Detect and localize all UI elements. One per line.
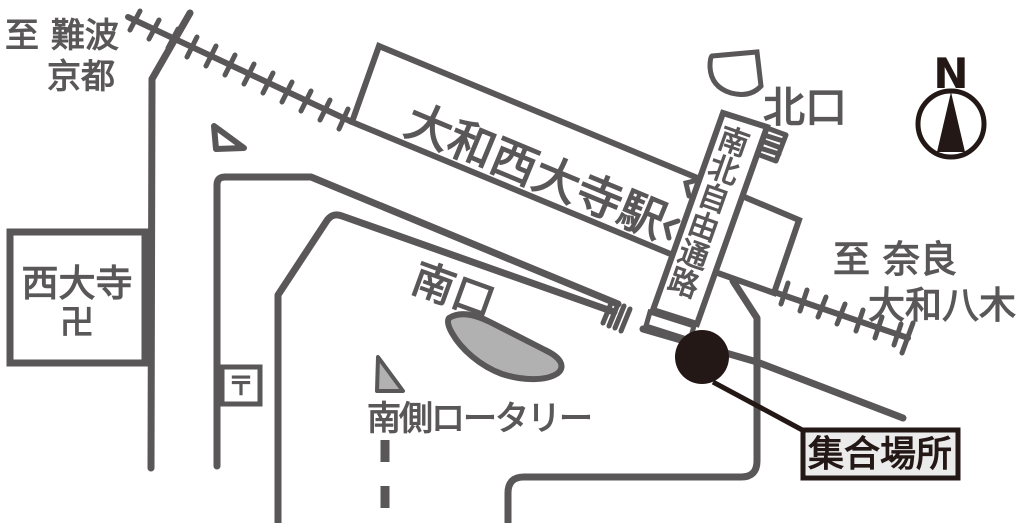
post-office-icon: 〒 — [228, 372, 254, 402]
label-destination-se-2: 大和八木 — [868, 284, 1016, 327]
label-destination-nw-2: 京都 — [47, 57, 115, 97]
south-exit-stairs — [603, 301, 630, 331]
meeting-point-marker — [675, 330, 729, 384]
triangle-marker-south — [377, 357, 403, 391]
label-temple-name: 西大寺 — [22, 262, 133, 305]
rotary-island — [448, 314, 562, 379]
stairs-hatch-south — [603, 301, 630, 331]
railway-nw-line — [128, 17, 352, 122]
compass-needle — [937, 92, 965, 152]
compass — [918, 91, 984, 157]
label-destination-se-1: 至 奈良 — [833, 238, 957, 281]
railway-northwest — [128, 11, 352, 129]
label-north-exit: 北口 — [763, 83, 847, 132]
label-meeting-point: 集合場所 — [807, 434, 952, 475]
label-temple-mark: 卍 — [60, 303, 94, 343]
road-west-vertical — [151, 13, 190, 468]
label-destination-nw-1: 至 難波 — [5, 16, 119, 56]
triangle-marker-north — [214, 126, 244, 149]
north-exit-structure — [710, 52, 761, 94]
label-compass-north: N — [933, 49, 968, 98]
station-area-map: 至 難波 京都 大和西大寺駅 北口 南北自由通路 至 奈良 大和八木 西大寺 卍… — [0, 0, 1024, 523]
label-rotary: 南側ロータリー — [367, 399, 591, 439]
